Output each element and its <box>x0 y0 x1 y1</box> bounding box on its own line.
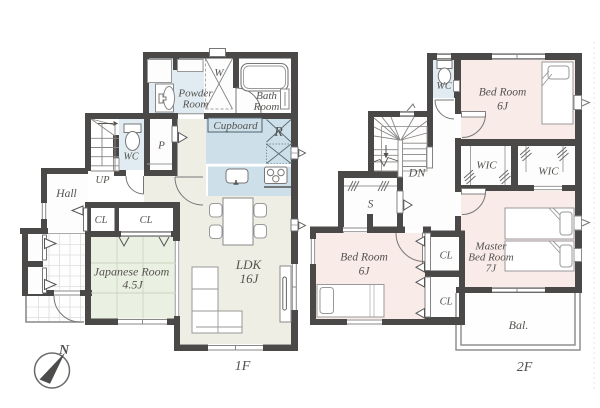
svg-text:Bed Room: Bed Room <box>479 87 527 99</box>
svg-text:Hall: Hall <box>55 188 76 200</box>
svg-text:6J: 6J <box>497 101 509 113</box>
svg-text:6J: 6J <box>359 266 371 278</box>
svg-text:UP: UP <box>96 175 111 186</box>
svg-text:R: R <box>273 125 283 140</box>
svg-text:1F: 1F <box>235 359 251 374</box>
svg-text:DN: DN <box>408 166 427 180</box>
svg-text:P: P <box>157 140 165 152</box>
svg-text:Bal.: Bal. <box>509 318 529 332</box>
svg-text:WC: WC <box>437 81 452 92</box>
svg-text:Room: Room <box>253 101 280 113</box>
svg-text:Room: Room <box>182 99 209 111</box>
svg-text:Japanese Room: Japanese Room <box>94 265 170 279</box>
svg-text:WIC: WIC <box>538 166 559 178</box>
svg-text:CL: CL <box>440 297 453 308</box>
svg-text:CL: CL <box>140 215 153 226</box>
svg-text:WC: WC <box>124 152 139 163</box>
svg-text:S: S <box>368 199 374 211</box>
svg-text:WIC: WIC <box>476 160 497 172</box>
svg-text:Cupboard: Cupboard <box>213 120 258 132</box>
svg-text:Bed Room: Bed Room <box>340 252 388 264</box>
svg-text:7J: 7J <box>486 263 498 275</box>
svg-text:W: W <box>214 67 224 79</box>
svg-text:N: N <box>58 343 70 358</box>
svg-text:2F: 2F <box>517 360 533 375</box>
svg-text:4.5J: 4.5J <box>122 278 143 292</box>
svg-text:CL: CL <box>440 251 453 262</box>
svg-text:16J: 16J <box>240 271 260 286</box>
svg-text:CL: CL <box>95 215 108 226</box>
svg-text:LDK: LDK <box>235 257 263 272</box>
